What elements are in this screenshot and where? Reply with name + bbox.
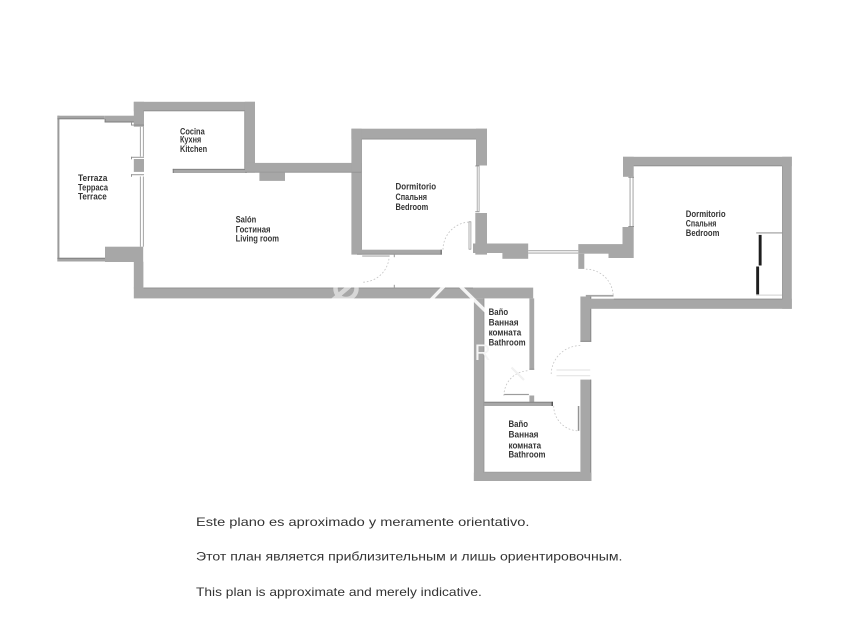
svg-text:Ванная: Ванная xyxy=(509,430,539,440)
svg-text:комната: комната xyxy=(489,327,522,337)
svg-text:Bedroom: Bedroom xyxy=(396,202,429,212)
svg-text:Dormitorio: Dormitorio xyxy=(396,182,437,192)
svg-text:Dormitorio: Dormitorio xyxy=(686,209,726,219)
svg-text:Living room: Living room xyxy=(236,233,279,243)
svg-text:Этот план является приблизител: Этот план является приблизительным и лиш… xyxy=(196,550,622,564)
svg-text:Baño: Baño xyxy=(509,419,529,429)
svg-text:Kitchen: Kitchen xyxy=(180,144,207,154)
svg-text:Спальня: Спальня xyxy=(686,219,717,229)
svg-text:Este plano es aproximado y mer: Este plano es aproximado y meramente ori… xyxy=(196,515,530,529)
svg-text:Bathroom: Bathroom xyxy=(509,449,546,459)
svg-text:Ванная: Ванная xyxy=(489,317,519,327)
svg-text:This plan is approximate and m: This plan is approximate and merely indi… xyxy=(196,585,482,599)
svg-text:Спальня: Спальня xyxy=(396,192,428,202)
svg-text:Baño: Baño xyxy=(489,307,509,317)
svg-text:Bathroom: Bathroom xyxy=(489,338,526,348)
svg-text:Salón: Salón xyxy=(236,214,257,224)
svg-text:Terrace: Terrace xyxy=(78,192,107,202)
svg-text:Bedroom: Bedroom xyxy=(686,228,720,238)
